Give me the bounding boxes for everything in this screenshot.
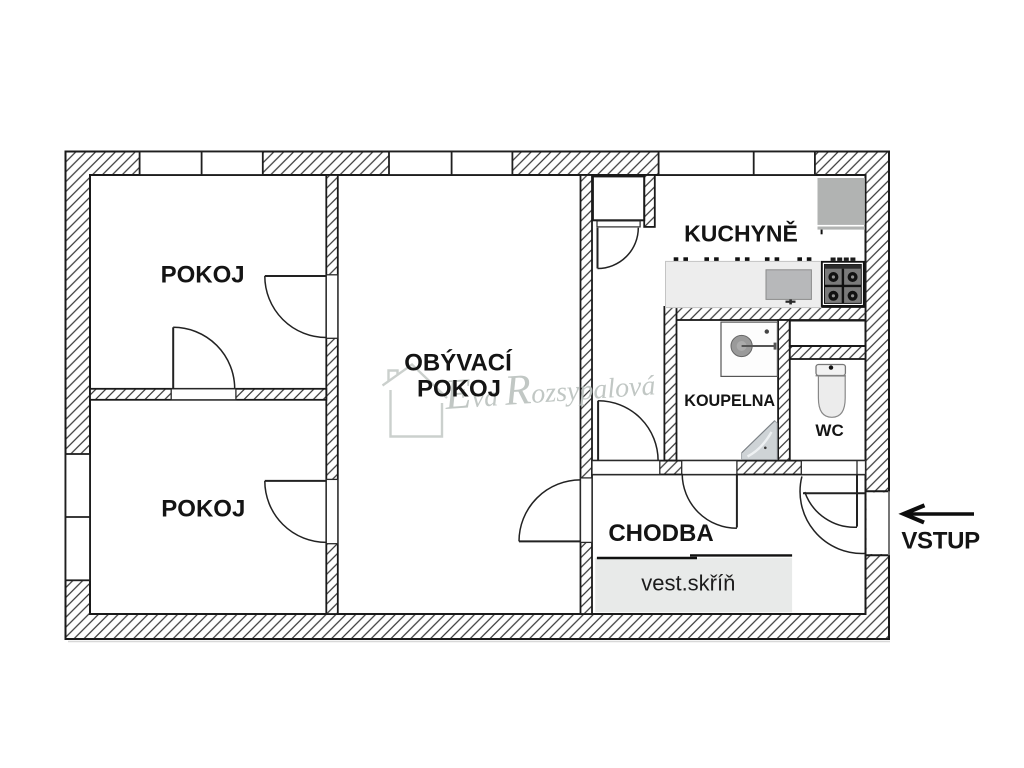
svg-text:POKOJ: POKOJ: [161, 496, 245, 523]
svg-text:vest.skříň: vest.skříň: [641, 571, 735, 596]
svg-text:KOUPELNA: KOUPELNA: [684, 392, 775, 410]
svg-text:POKOJ: POKOJ: [161, 261, 245, 288]
svg-text:KUCHYNĚ: KUCHYNĚ: [684, 220, 798, 247]
svg-text:OBÝVACÍ: OBÝVACÍ: [404, 349, 513, 377]
svg-text:POKOJ: POKOJ: [417, 375, 501, 402]
svg-text:WC: WC: [815, 421, 843, 440]
svg-text:CHODBA: CHODBA: [608, 520, 713, 547]
svg-text:VSTUP: VSTUP: [901, 527, 980, 554]
